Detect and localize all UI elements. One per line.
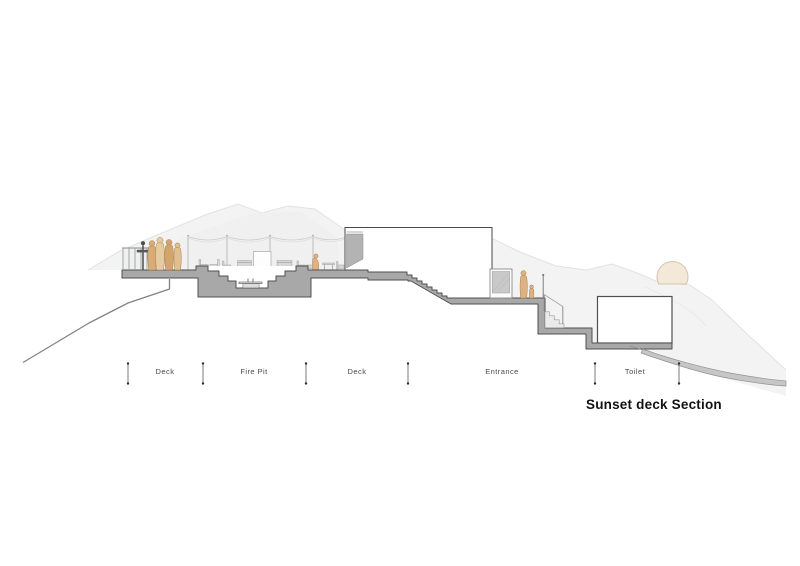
entrance-gate — [490, 269, 512, 298]
drawing-title: Sunset deck Section — [586, 397, 722, 412]
person-head — [314, 254, 318, 258]
adult-head — [521, 271, 526, 276]
section-label-deck-left: Deck — [156, 367, 175, 376]
section-label-entrance: Entrance — [485, 367, 519, 376]
post-cap — [187, 235, 189, 237]
person-body — [174, 248, 181, 270]
ground-line-left — [23, 279, 170, 363]
toilet-building — [598, 297, 673, 344]
section-label-deck-right: Deck — [348, 367, 367, 376]
section-label-fire-pit: Fire Pit — [240, 367, 267, 376]
sofa-back — [238, 261, 252, 263]
section-drawing-page: Deck Fire Pit Deck Entrance Toilet Sunse… — [0, 0, 800, 566]
adult-body — [520, 276, 527, 299]
person-head — [149, 241, 155, 247]
sculpture-head — [141, 241, 145, 245]
sofa-back — [277, 261, 292, 263]
chair-seat — [338, 265, 344, 268]
person-body — [148, 246, 156, 270]
dimension-ticks — [127, 362, 680, 384]
sun-icon — [657, 261, 688, 284]
building-middle — [345, 228, 492, 299]
architectural-section-drawing — [0, 0, 800, 566]
sculpture-arm — [137, 250, 149, 253]
section-label-toilet: Toilet — [625, 367, 645, 376]
child-body — [529, 289, 534, 298]
person-body — [156, 243, 165, 270]
tick-lines — [128, 364, 679, 383]
person-body — [165, 245, 174, 270]
child-head — [530, 285, 534, 289]
tick-dots — [127, 362, 680, 384]
table-top — [323, 263, 335, 265]
entrance-lamp-head — [542, 274, 544, 276]
building-middle-fill — [345, 228, 492, 299]
fire-pit-hatch — [245, 284, 257, 288]
